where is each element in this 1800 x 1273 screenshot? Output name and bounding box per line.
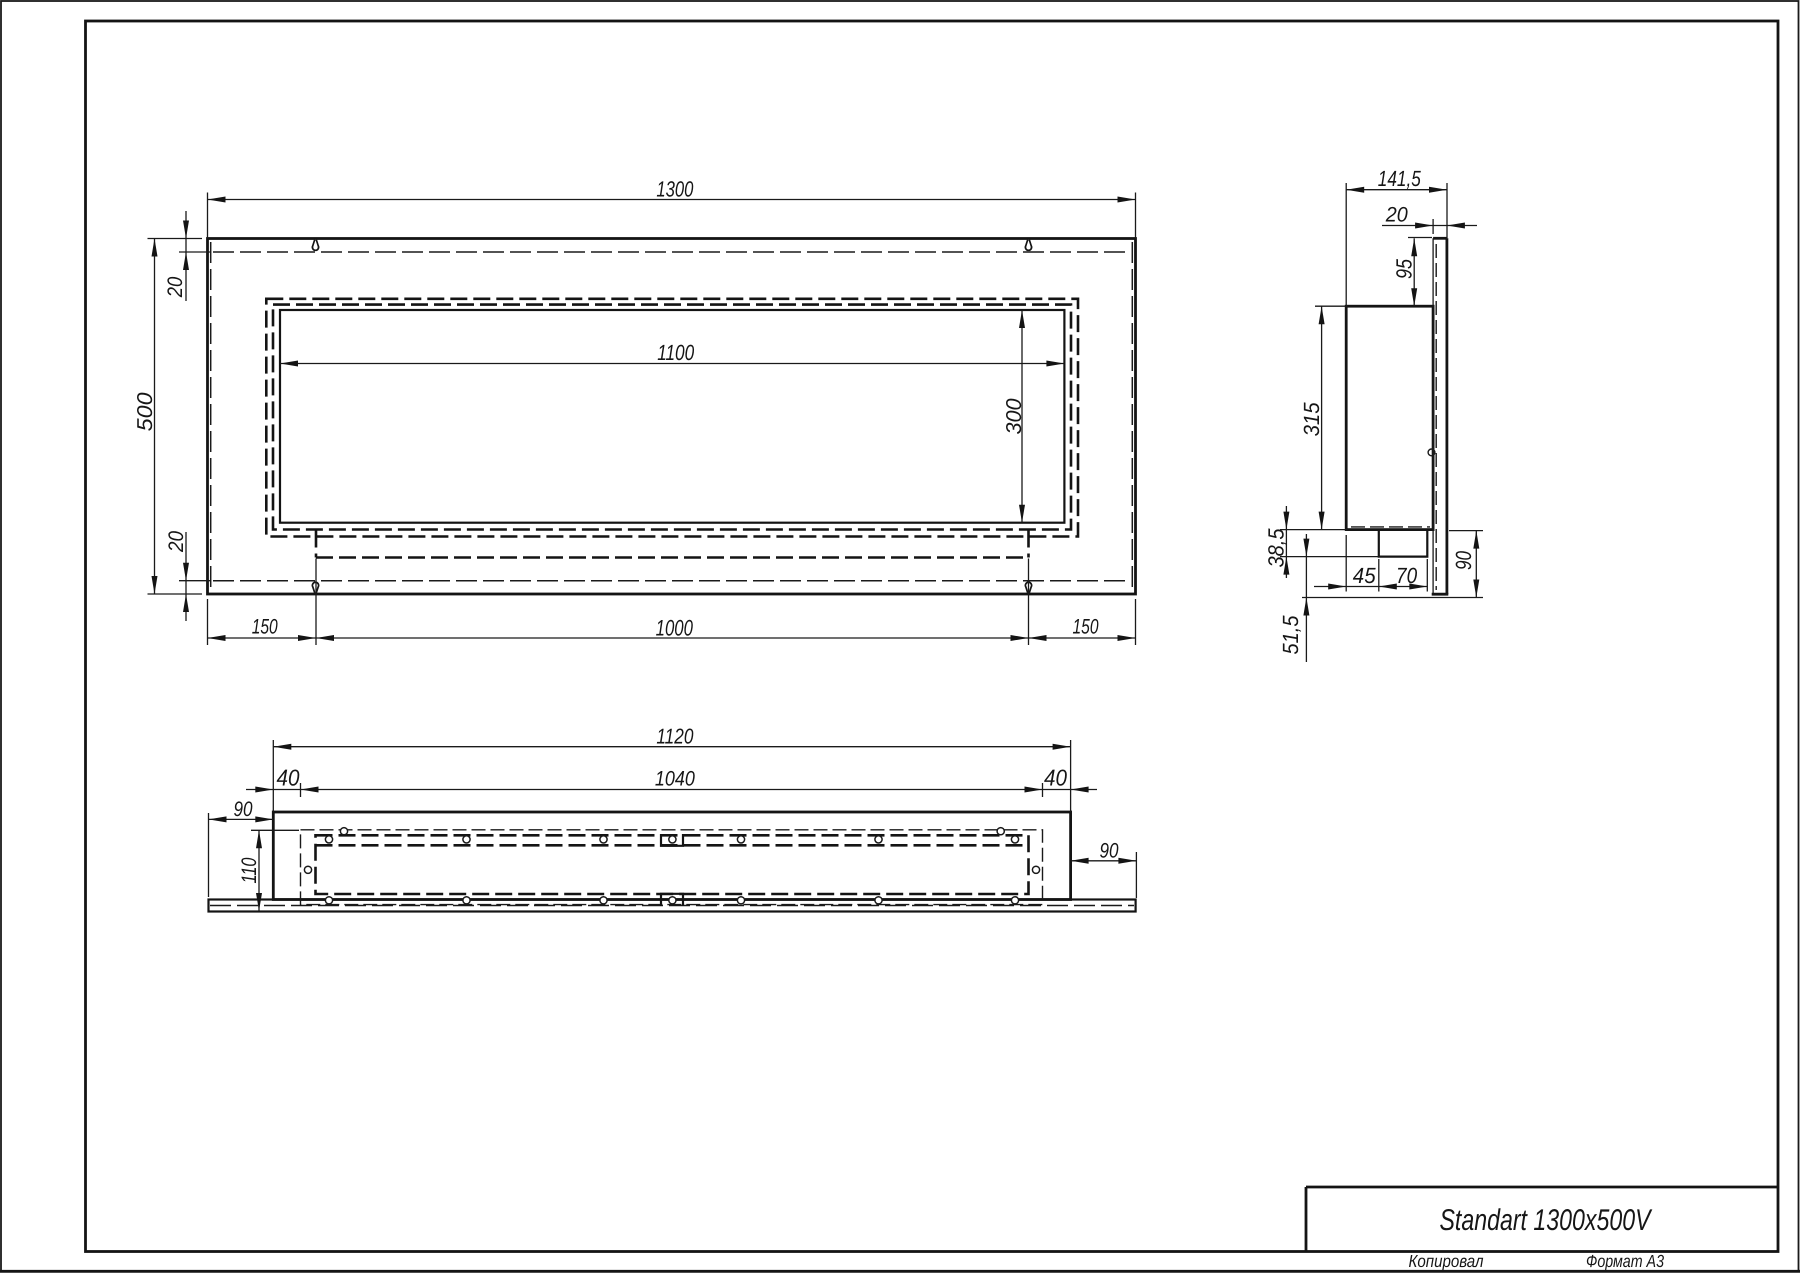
svg-text:1000: 1000 [656, 616, 694, 641]
svg-text:20: 20 [1385, 204, 1408, 227]
svg-text:150: 150 [1073, 616, 1099, 639]
svg-text:70: 70 [1396, 563, 1418, 588]
svg-text:300: 300 [1002, 398, 1026, 434]
svg-text:500: 500 [133, 392, 157, 431]
svg-text:150: 150 [252, 616, 278, 639]
svg-text:1300: 1300 [656, 177, 694, 202]
svg-text:141,5: 141,5 [1378, 166, 1422, 191]
svg-text:45: 45 [1353, 563, 1376, 588]
svg-text:40: 40 [1044, 765, 1067, 791]
svg-text:110: 110 [238, 857, 261, 883]
svg-text:51,5: 51,5 [1278, 615, 1303, 655]
svg-text:1100: 1100 [657, 340, 695, 365]
svg-text:90: 90 [1451, 550, 1476, 570]
svg-text:38,5: 38,5 [1264, 528, 1289, 568]
svg-text:Копировал: Копировал [1409, 1251, 1484, 1271]
svg-text:90: 90 [1100, 839, 1119, 862]
svg-text:40: 40 [277, 765, 300, 791]
svg-text:90: 90 [234, 798, 253, 821]
svg-text:95: 95 [1392, 258, 1417, 279]
svg-text:Standart 1300x500V: Standart 1300x500V [1440, 1204, 1653, 1237]
svg-text:1120: 1120 [656, 724, 693, 748]
svg-text:1040: 1040 [655, 768, 695, 791]
svg-text:20: 20 [164, 276, 187, 298]
svg-text:20: 20 [165, 531, 188, 553]
svg-text:Формат A3: Формат A3 [1586, 1251, 1664, 1271]
svg-text:315: 315 [1299, 402, 1324, 437]
